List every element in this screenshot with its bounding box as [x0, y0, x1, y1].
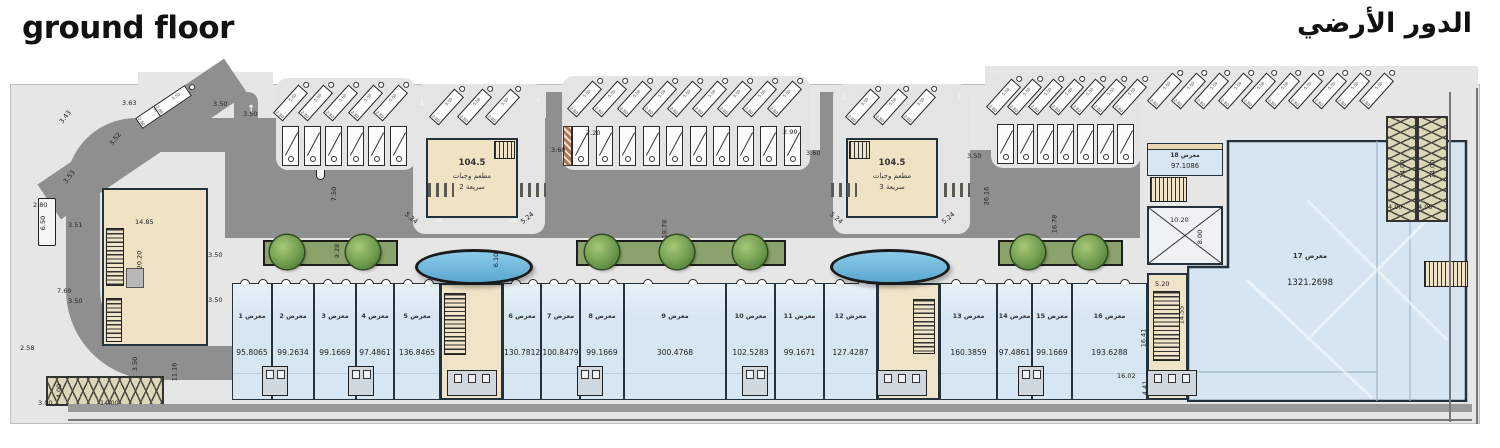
stall-number-circle	[671, 77, 679, 85]
stall-depth-label: 5.50	[782, 89, 792, 99]
wc-fixture	[1154, 374, 1162, 383]
stall-width-label: 2.80	[594, 106, 604, 116]
stall-width-label: 2.80	[1314, 98, 1324, 108]
stall-width-label: 2.80	[847, 114, 857, 124]
stall-number-circle	[402, 81, 410, 89]
wc-fixture	[1182, 374, 1190, 383]
stall-divider-line	[392, 132, 405, 156]
shop-area: 160.3859	[941, 348, 996, 357]
stall-width-label: 2.80	[669, 106, 679, 116]
stall-depth-label: 5.50	[1326, 81, 1336, 91]
stall-depth-label: 5.50	[1185, 81, 1195, 91]
stall-number-circle	[578, 156, 584, 162]
stall-number-circle	[302, 81, 310, 89]
shop-door-arc	[1120, 279, 1130, 284]
shop-label: معرض 8	[581, 312, 623, 320]
wc-unit-core	[447, 370, 497, 396]
dimension-label: 5.24	[519, 210, 535, 225]
stall-width-label: 2.80	[300, 110, 310, 120]
shop-label: معرض 6	[504, 312, 540, 320]
wc-fixture	[277, 370, 285, 379]
stall-number-circle	[766, 156, 772, 162]
stall-width-label: 2.80	[137, 117, 146, 127]
wc-fixture	[884, 374, 892, 383]
generated-plan-items: معرض 195.8065معرض 299.2634معرض 399.1669م…	[0, 0, 1500, 448]
stall-width-label: 2.80	[719, 106, 729, 116]
stall-number-circle	[1317, 69, 1325, 77]
stall-depth-label: 5.50	[1256, 81, 1266, 91]
shop-area: 97.4861	[357, 348, 393, 357]
stall-number-circle	[188, 83, 196, 91]
parking-stall-perpendicular	[325, 126, 342, 166]
dimension-label: 14.55	[1177, 306, 1185, 325]
wc-fixture	[581, 370, 589, 379]
shop-label: معرض 4	[357, 312, 393, 320]
stall-number-circle	[1141, 75, 1149, 83]
crosswalk	[428, 183, 454, 197]
stall-divider-line	[328, 132, 341, 156]
stall-number-circle	[672, 156, 678, 162]
shop: معرض 6130.7812	[503, 283, 541, 400]
dimension-label: 16.02	[1117, 372, 1136, 380]
stall-width-label: 2.80	[1149, 98, 1159, 108]
stall-width-label: 2.80	[988, 104, 998, 114]
stall-divider-line	[622, 132, 635, 156]
stall-depth-label: 5.50	[1022, 87, 1032, 97]
stall-number-circle	[646, 77, 654, 85]
shop-label: معرض 13	[941, 312, 996, 320]
stall-width-label: 2.80	[1267, 98, 1277, 108]
stall-depth-label: 5.50	[363, 93, 373, 103]
stall-depth-label: 5.50	[1209, 81, 1219, 91]
stall-width-label: 2.80	[1093, 104, 1103, 114]
stall-number-circle	[374, 156, 380, 162]
stall-depth-label: 5.50	[1127, 87, 1137, 97]
parking-stall-perpendicular	[390, 126, 407, 166]
stall-depth-label: 5.50	[682, 89, 692, 99]
stall-depth-label: 5.50	[1043, 87, 1053, 97]
dimension-label: 14.85	[135, 218, 154, 226]
stall-number-circle	[1043, 154, 1049, 160]
stall-divider-line	[716, 132, 729, 156]
shop-area: 99.1671	[776, 348, 823, 357]
shop-area: 130.7812	[504, 348, 540, 357]
stall-number-circle	[1036, 75, 1044, 83]
stall-divider-line	[1020, 130, 1033, 154]
wc-unit	[348, 366, 374, 396]
tree	[1073, 235, 1107, 269]
stall-number-circle	[649, 156, 655, 162]
dimension-label: 3.51	[68, 221, 82, 229]
shop-area: 95.8065	[233, 348, 271, 357]
stall-depth-label: 5.50	[607, 89, 617, 99]
shop-label: معرض 10	[727, 312, 774, 320]
stall-depth-label: 5.50	[888, 97, 898, 107]
stall-depth-label: 5.50	[1232, 81, 1242, 91]
stall-depth-label: 5.50	[582, 89, 592, 99]
road-direction-arrow: →	[508, 216, 516, 227]
wc-unit	[262, 366, 288, 396]
dimension-label: 2.80	[33, 201, 47, 209]
stall-depth-label: 5.50	[1064, 87, 1074, 97]
stall-number-circle	[1199, 69, 1207, 77]
stall-number-circle	[1103, 154, 1109, 160]
dimension-label: 5.20	[1155, 280, 1169, 288]
parking-stall-perpendicular	[760, 126, 777, 166]
dimension-label: 14.00	[1398, 160, 1406, 179]
dimension-label: 8.00	[1196, 230, 1204, 244]
dimension-label: 5.24	[940, 210, 956, 225]
shop-door-arc	[589, 279, 599, 284]
stall-width-label: 2.80	[1009, 104, 1019, 114]
stall-width-label: 2.80	[1220, 98, 1230, 108]
parking-stall-perpendicular	[1037, 124, 1054, 164]
wc-fixture	[1168, 374, 1176, 383]
dimension-label: 4.00	[1418, 203, 1432, 211]
shop-label: معرض 15	[1033, 312, 1071, 320]
stall-depth-label: 5.50	[444, 97, 454, 107]
tree	[1011, 235, 1045, 269]
tree	[660, 235, 694, 269]
stall-depth-label: 5.50	[171, 92, 181, 101]
wc-fixture	[592, 370, 600, 379]
stall-number-circle	[696, 156, 702, 162]
shop-label: معرض 12	[825, 312, 876, 320]
stall-divider-line	[739, 132, 752, 156]
dimension-label: 3.60	[806, 149, 820, 157]
stall-number-circle	[353, 156, 359, 162]
stall-number-circle	[1015, 75, 1023, 83]
pond	[830, 249, 950, 285]
parking-stall-perpendicular	[690, 126, 707, 166]
stall-number-circle	[1063, 154, 1069, 160]
stall-depth-label: 5.50	[860, 97, 870, 107]
wc-fixture	[757, 370, 765, 379]
stall-number-circle	[1270, 69, 1278, 77]
shop: معرض 1199.1671	[775, 283, 824, 400]
stall-depth-label: 5.50	[313, 93, 323, 103]
parking-stall-perpendicular	[1057, 124, 1074, 164]
wc-fixture	[1022, 370, 1030, 379]
shop-door-arc	[1087, 279, 1097, 284]
stall-width-label: 2.80	[350, 110, 360, 120]
dimension-label: 3.50	[68, 297, 82, 305]
stall-width-label: 2.80	[375, 110, 385, 120]
shop-door-arc	[364, 279, 374, 284]
dimension-label: 3.50	[208, 251, 222, 259]
shop-label: معرض 2	[273, 312, 313, 320]
crosswalk	[831, 183, 857, 197]
stall-divider-line	[1120, 130, 1133, 154]
stall-number-circle	[719, 156, 725, 162]
dimension-label: 7.60	[57, 287, 71, 295]
shop-door-arc	[1058, 279, 1068, 284]
stall-number-circle	[1120, 75, 1128, 83]
dimension-label: 14.00	[100, 399, 119, 407]
parking-stall-perpendicular	[997, 124, 1014, 164]
stall-number-circle	[796, 77, 804, 85]
stall-divider-line	[645, 132, 658, 156]
shop-door-arc	[240, 279, 250, 284]
dimension-label: 3.00	[38, 399, 52, 407]
shop-door-arc	[549, 279, 559, 284]
stall-width-label: 2.80	[1290, 98, 1300, 108]
stall-width-label: 2.80	[1114, 104, 1124, 114]
dimension-label: 3.53	[62, 169, 77, 185]
stall-width-label: 2.80	[644, 106, 654, 116]
stall-number-circle	[596, 77, 604, 85]
wc-fixture	[746, 370, 754, 379]
parking-stall-perpendicular	[737, 126, 754, 166]
shop-area: 136.8465	[395, 348, 439, 357]
stall-number-circle	[743, 156, 749, 162]
wc-fixture	[454, 374, 462, 383]
shop-door-arc	[566, 279, 576, 284]
dimension-label: 3.50	[208, 296, 222, 304]
shop-door-arc	[299, 279, 309, 284]
stall-divider-line	[371, 132, 384, 156]
stall-number-circle	[377, 81, 385, 89]
stall-number-circle	[1340, 69, 1348, 77]
tree	[270, 235, 304, 269]
dimension-label: 16.41	[1139, 329, 1147, 348]
road-direction-arrow: ↓	[534, 94, 542, 105]
parking-stall-perpendicular	[1017, 124, 1034, 164]
dimension-label: 9.28	[333, 244, 341, 258]
stall-width-label: 2.80	[1337, 98, 1347, 108]
shop-door-arc	[688, 279, 698, 284]
stall-depth-label: 5.50	[1373, 81, 1383, 91]
stall-depth-label: 5.50	[1279, 81, 1289, 91]
stall-number-circle	[902, 85, 910, 93]
stall-number-circle	[288, 156, 294, 162]
stall-depth-label: 5.50	[1001, 87, 1011, 97]
stall-divider-line	[1040, 130, 1053, 154]
shop-door-arc	[976, 279, 986, 284]
stall-number-circle	[1176, 69, 1184, 77]
shop-label: معرض 7	[542, 312, 579, 320]
shop-door-arc	[281, 279, 291, 284]
stall-number-circle	[1023, 154, 1029, 160]
shop: معرض 9300.4768	[624, 283, 726, 400]
stall-number-circle	[352, 81, 360, 89]
stall-divider-line	[285, 132, 298, 156]
stall-width-label: 2.80	[431, 114, 441, 124]
stall-number-circle	[396, 156, 402, 162]
parking-stall-perpendicular	[1097, 124, 1114, 164]
shop-door-arc	[951, 279, 961, 284]
parking-stall: 5.502.80	[485, 89, 520, 126]
stall-number-circle	[458, 85, 466, 93]
tree	[585, 235, 619, 269]
stall-number-circle	[1099, 75, 1107, 83]
parking-stall: 5.502.80	[429, 89, 464, 126]
stall-depth-label: 5.50	[1162, 81, 1172, 91]
shop-label: معرض 14	[998, 312, 1031, 320]
shop-door-arc	[381, 279, 391, 284]
stall-number-circle	[1387, 69, 1395, 77]
shop-area: 99.1669	[1033, 348, 1071, 357]
dimension-label: 3.50	[213, 100, 227, 108]
stall-width-label: 2.80	[325, 110, 335, 120]
wc-unit	[742, 366, 768, 396]
parking-stall-perpendicular	[666, 126, 683, 166]
stall-depth-label: 5.50	[732, 89, 742, 99]
wc-fixture	[363, 370, 371, 379]
stall-width-label: 2.80	[459, 114, 469, 124]
shop-door-arc	[1020, 279, 1030, 284]
dimension-label: 6.50	[39, 216, 47, 230]
stall-number-circle	[1293, 69, 1301, 77]
shop: معرض 7100.8479	[541, 283, 580, 400]
dimension-label: 7.50	[330, 187, 338, 201]
parking-stall: 5.502.80	[873, 89, 908, 126]
parking-stall-perpendicular	[347, 126, 364, 166]
shop-label: معرض 11	[776, 312, 823, 320]
wc-unit	[577, 366, 603, 396]
stall-divider-line	[1080, 130, 1093, 154]
wc-fixture	[898, 374, 906, 383]
dimension-label: 4.00	[1388, 203, 1402, 211]
wc-fixture	[1033, 370, 1041, 379]
shop-area: 193.6288	[1073, 348, 1146, 357]
shop-door-arc	[736, 279, 746, 284]
shop-door-arc	[528, 279, 538, 284]
dimension-label: 18.78	[660, 220, 668, 239]
stall-divider-line	[763, 132, 776, 156]
dimension-label: 3.60	[551, 146, 565, 154]
shop: معرض 13160.3859	[940, 283, 997, 400]
stall-width-label: 2.80	[569, 106, 579, 116]
wc-fixture	[912, 374, 920, 383]
dimension-label: 6.10	[492, 253, 500, 267]
stall-width-label: 2.80	[903, 114, 913, 124]
stall-width-label: 2.80	[1072, 104, 1082, 114]
stall-number-circle	[327, 81, 335, 89]
stall-width-label: 2.80	[694, 106, 704, 116]
dimension-label: 3.43	[58, 109, 73, 125]
shop: معرض 12127.4287	[824, 283, 877, 400]
dimension-label: 5.24	[403, 210, 419, 225]
parking-stall-perpendicular	[619, 126, 636, 166]
stall-width-label: 2.80	[875, 114, 885, 124]
shop-door-arc	[643, 279, 653, 284]
dimension-label: 5.24	[828, 210, 844, 225]
stall-depth-label: 5.50	[1106, 87, 1116, 97]
shop-door-arc	[323, 279, 333, 284]
shop-area: 99.1669	[315, 348, 355, 357]
dimension-label: 10.20	[1170, 216, 1189, 224]
road-direction-arrow: ↓	[418, 98, 426, 109]
stall-number-circle	[486, 85, 494, 93]
shop-label: معرض 1	[233, 312, 271, 320]
shop-area: 99.1669	[581, 348, 623, 357]
parking-stall-perpendicular	[1077, 124, 1094, 164]
parking-stall-perpendicular	[713, 126, 730, 166]
parking-stall-perpendicular	[304, 126, 321, 166]
stall-depth-label: 5.50	[657, 89, 667, 99]
stall-width-label: 2.80	[1030, 104, 1040, 114]
shop-area: 99.2634	[273, 348, 313, 357]
shop-door-arc	[835, 279, 845, 284]
stall-number-circle	[621, 77, 629, 85]
stall-width-label: 2.80	[275, 110, 285, 120]
stall-depth-label: 5.50	[916, 97, 926, 107]
stall-divider-line	[692, 132, 705, 156]
stall-width-label: 2.80	[1196, 98, 1206, 108]
tree	[733, 235, 767, 269]
dimension-label: 16.78	[1050, 215, 1058, 234]
shop-area: 127.4287	[825, 348, 876, 357]
parking-stall-perpendicular	[643, 126, 660, 166]
stall-width-label: 2.80	[1361, 98, 1371, 108]
road-direction-arrow: ↓	[840, 92, 848, 103]
parking-stall: 5.502.80	[901, 89, 936, 126]
shop: معرض 16193.6288	[1072, 283, 1147, 400]
wc-unit-core	[1147, 370, 1197, 396]
stall-number-circle	[1364, 69, 1372, 77]
shop-area: 102.5283	[727, 348, 774, 357]
stall-depth-label: 5.50	[338, 93, 348, 103]
shop-door-arc	[341, 279, 351, 284]
stall-divider-line	[1060, 130, 1073, 154]
shop-door-arc	[1004, 279, 1014, 284]
stall-number-circle	[1246, 69, 1254, 77]
stall-divider-line	[1100, 130, 1113, 154]
stall-width-label: 2.80	[744, 106, 754, 116]
stall-divider-line	[669, 132, 682, 156]
stall-number-circle	[874, 85, 882, 93]
stall-number-circle	[331, 156, 337, 162]
wc-unit	[1018, 366, 1044, 396]
dimension-label: 3.50	[131, 357, 139, 371]
stall-depth-label: 5.50	[500, 97, 510, 107]
stall-width-label: 2.80	[1173, 98, 1183, 108]
shop-label: معرض 3	[315, 312, 355, 320]
dimension-label: 3.52	[108, 131, 123, 147]
parking-stall: 5.502.80	[153, 85, 192, 117]
stall-number-circle	[625, 156, 631, 162]
shop: معرض 5136.8465	[394, 283, 440, 400]
crosswalk	[944, 183, 970, 197]
stall-depth-label: 5.50	[388, 93, 398, 103]
stall-depth-label: 5.50	[472, 97, 482, 107]
stall-depth-label: 5.50	[1085, 87, 1095, 97]
road-direction-arrow: ↑	[247, 104, 255, 115]
parking-stall: 5.502.80	[845, 89, 880, 126]
tree	[346, 235, 380, 269]
shop-area: 100.8479	[542, 348, 579, 357]
crosswalk	[520, 183, 546, 197]
dimension-label: 7.20	[586, 129, 600, 137]
parking-stall-perpendicular	[368, 126, 385, 166]
wc-fixture	[468, 374, 476, 383]
stall-divider-line	[1000, 130, 1013, 154]
dimension-label: 3.63	[122, 99, 136, 107]
shop-label: معرض 16	[1073, 312, 1146, 320]
stall-width-label: 2.80	[619, 106, 629, 116]
wc-fixture	[352, 370, 360, 379]
stall-number-circle	[771, 77, 779, 85]
stall-number-circle	[930, 85, 938, 93]
stall-width-label: 2.80	[487, 114, 497, 124]
stall-divider-line	[349, 132, 362, 156]
parking-stall-perpendicular	[1117, 124, 1134, 164]
road-direction-arrow: ↑	[955, 92, 963, 103]
shop-door-arc	[757, 279, 767, 284]
stall-depth-label: 5.50	[632, 89, 642, 99]
stall-number-circle	[721, 77, 729, 85]
